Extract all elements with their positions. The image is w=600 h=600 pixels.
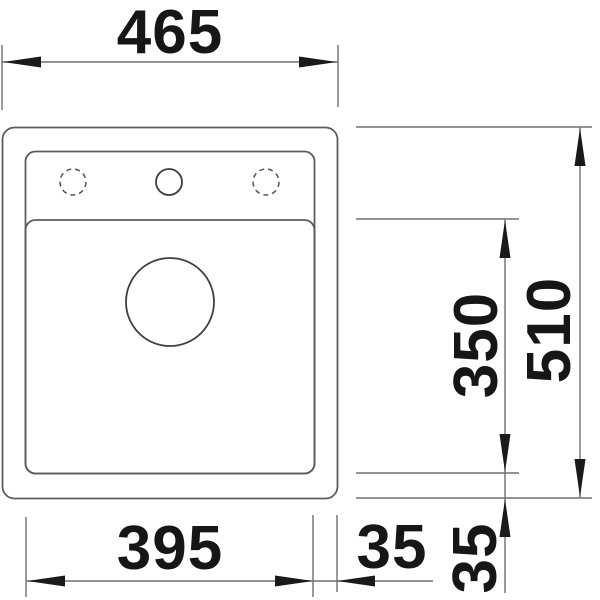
dim-bowl-width: 395 35 bbox=[26, 513, 433, 597]
arrow-down-icon bbox=[575, 459, 586, 497]
sink-body bbox=[3, 128, 338, 499]
arrow-right-icon bbox=[275, 576, 313, 587]
dim-label-rim-bottom: 35 bbox=[441, 523, 510, 594]
faucet-hole-center bbox=[156, 169, 182, 195]
dim-label-bowl-width: 395 bbox=[117, 514, 223, 583]
arrow-up-icon bbox=[500, 220, 511, 258]
arrow-down-icon bbox=[500, 434, 511, 472]
arrow-right-icon bbox=[299, 57, 337, 68]
dim-label-overall-depth: 510 bbox=[515, 277, 584, 383]
dim-label-overall-width: 465 bbox=[117, 0, 223, 67]
faucet-hole-right-optional bbox=[253, 169, 279, 195]
arrow-left-icon bbox=[3, 57, 41, 68]
sink-outer-edge bbox=[3, 128, 338, 499]
sink-dimension-drawing: 465 510 350 35 bbox=[0, 0, 600, 600]
dim-label-bowl-depth: 350 bbox=[442, 292, 511, 398]
dim-label-rim-right: 35 bbox=[357, 513, 428, 582]
sink-rim-inner-edge bbox=[26, 152, 315, 474]
dim-overall-width: 465 bbox=[2, 0, 338, 110]
faucet-hole-left-optional bbox=[60, 169, 86, 195]
arrow-left-icon bbox=[27, 576, 65, 587]
technical-drawing-canvas: 465 510 350 35 bbox=[0, 0, 600, 600]
arrow-up-icon bbox=[575, 128, 586, 166]
drain-hole bbox=[126, 258, 214, 346]
